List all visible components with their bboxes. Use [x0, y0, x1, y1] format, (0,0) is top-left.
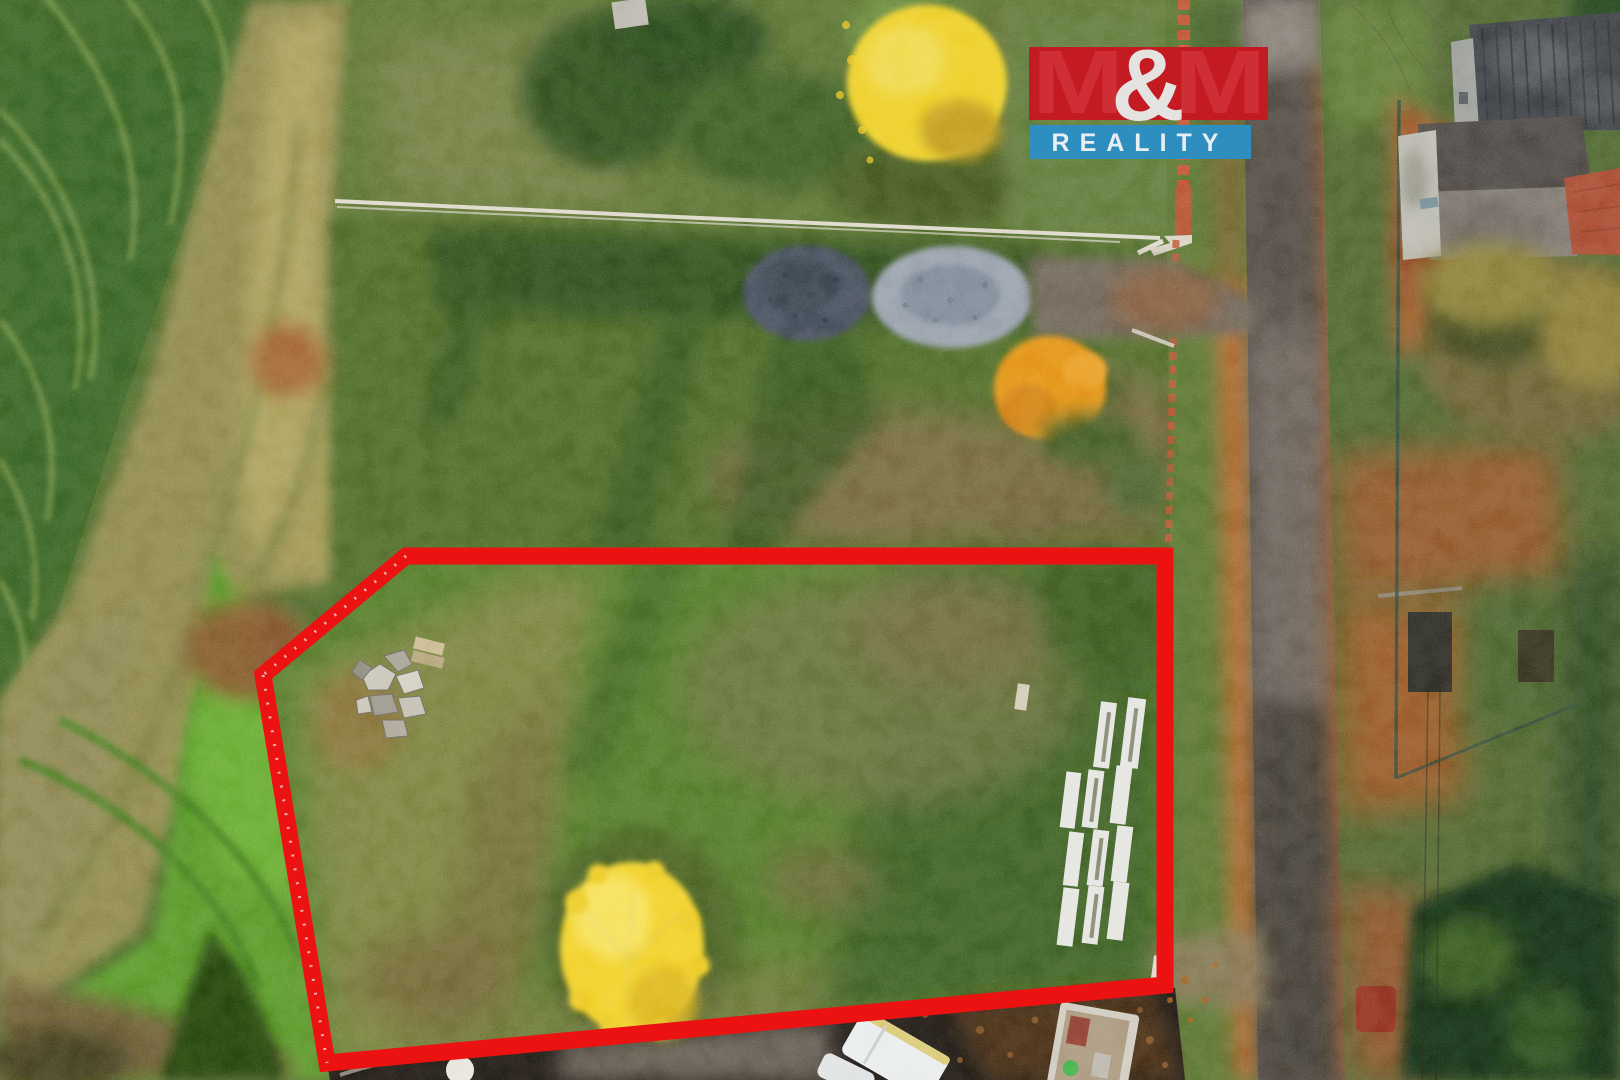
svg-text:M: M [1174, 33, 1266, 133]
svg-text:&: & [1111, 28, 1185, 142]
svg-text:REALITY: REALITY [1052, 129, 1229, 157]
